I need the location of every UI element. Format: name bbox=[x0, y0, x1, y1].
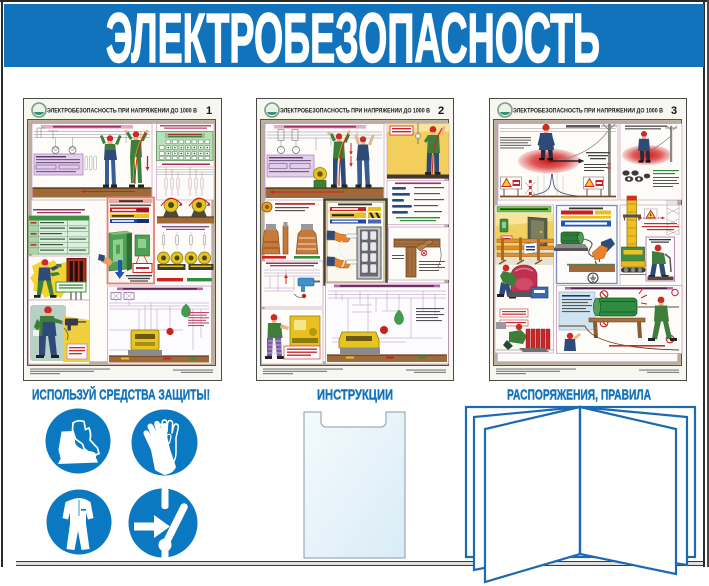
svg-text:РАСПОРЯЖЕНИЯ, ПРАВИЛА: РАСПОРЯЖЕНИЯ, ПРАВИЛА bbox=[507, 387, 651, 403]
svg-text:ЭЛЕКТРОБЕЗОПАСНОСТЬ ПРИ НАПРЯЖ: ЭЛЕКТРОБЕЗОПАСНОСТЬ ПРИ НАПРЯЖЕНИИ ДО 10… bbox=[280, 108, 430, 115]
svg-text:ЭЛЕКТРОБЕЗОПАСНОСТЬ: ЭЛЕКТРОБЕЗОПАСНОСТЬ bbox=[106, 4, 600, 67]
svg-text:ЭЛЕКТРОБЕЗОПАСНОСТЬ ПРИ НАПРЯЖ: ЭЛЕКТРОБЕЗОПАСНОСТЬ ПРИ НАПРЯЖЕНИИ ДО 10… bbox=[47, 108, 197, 115]
svg-text:3: 3 bbox=[671, 105, 677, 117]
svg-text:ЭЛЕКТРОБЕЗОПАСНОСТЬ ПРИ НАПРЯЖ: ЭЛЕКТРОБЕЗОПАСНОСТЬ ПРИ НАПРЯЖЕНИИ ДО 10… bbox=[513, 108, 663, 115]
svg-text:ИНСТРУКЦИИ: ИНСТРУКЦИИ bbox=[317, 387, 393, 403]
svg-text:ИСПОЛЬЗУЙ СРЕДСТВА ЗАЩИТЫ!: ИСПОЛЬЗУЙ СРЕДСТВА ЗАЩИТЫ! bbox=[32, 386, 210, 403]
svg-text:2: 2 bbox=[438, 105, 444, 117]
svg-text:1: 1 bbox=[206, 105, 212, 117]
